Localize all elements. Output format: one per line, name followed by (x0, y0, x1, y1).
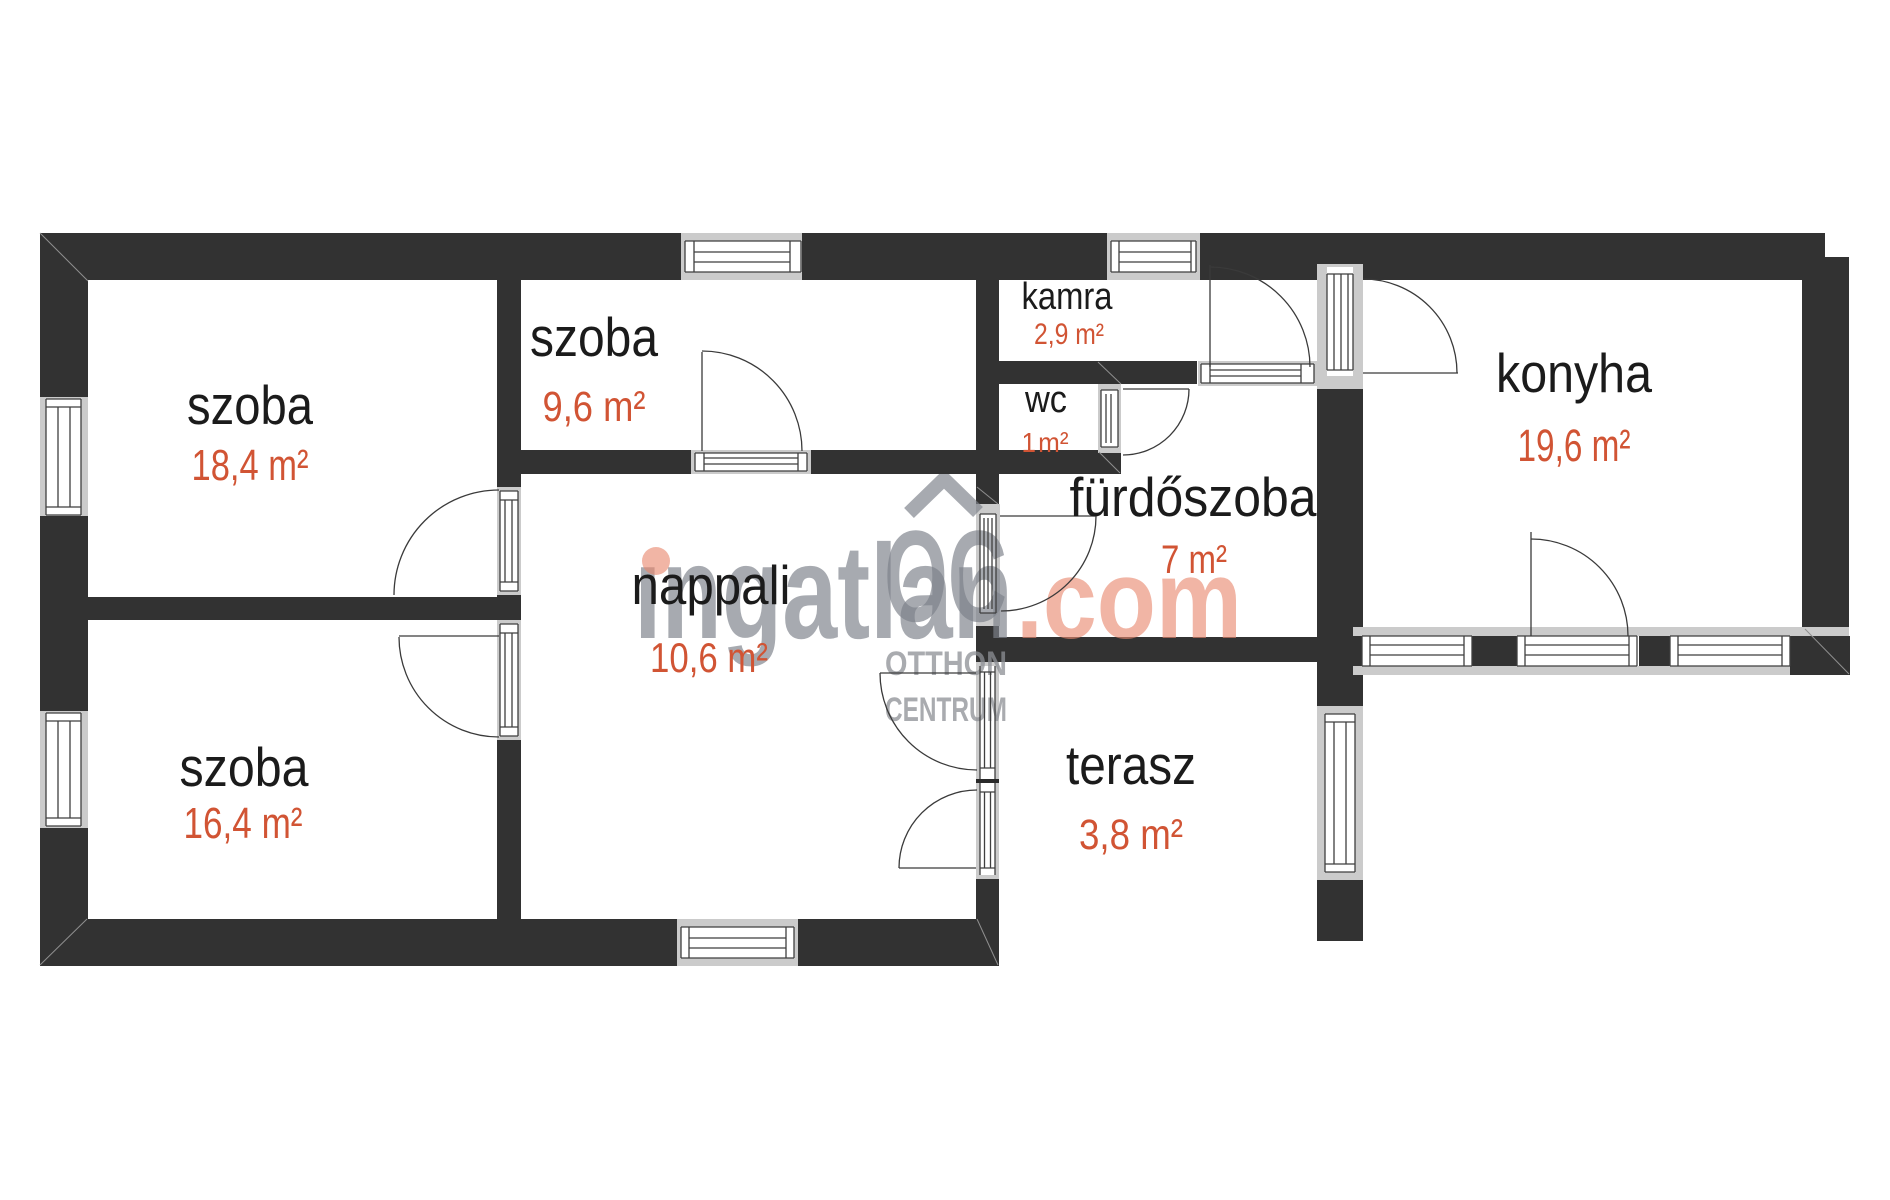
svg-text:szoba: szoba (530, 306, 658, 368)
svg-text:19,6 m²: 19,6 m² (1518, 420, 1631, 471)
svg-text:szoba: szoba (180, 736, 309, 798)
svg-text:OTTHON: OTTHON (885, 645, 1007, 683)
svg-text:18,4 m²: 18,4 m² (192, 441, 309, 490)
svg-text:fürdőszoba: fürdőszoba (1070, 466, 1317, 528)
svg-text:1 m²: 1 m² (1022, 427, 1069, 458)
svg-text:nappali: nappali (632, 554, 791, 616)
svg-text:szoba: szoba (187, 374, 313, 436)
svg-text:2,9 m²: 2,9 m² (1034, 318, 1104, 351)
svg-text:10,6 m²: 10,6 m² (650, 634, 768, 681)
svg-text:wc: wc (1024, 379, 1067, 421)
svg-text:kamra: kamra (1022, 276, 1114, 318)
svg-text:konyha: konyha (1496, 342, 1652, 404)
svg-text:terasz: terasz (1066, 734, 1196, 796)
svg-text:7 m²: 7 m² (1161, 538, 1227, 582)
svg-text:16,4 m²: 16,4 m² (184, 799, 303, 848)
svg-text:CENTRUM: CENTRUM (885, 691, 1007, 729)
svg-text:3,8 m²: 3,8 m² (1079, 811, 1183, 859)
svg-text:9,6 m²: 9,6 m² (543, 383, 646, 431)
